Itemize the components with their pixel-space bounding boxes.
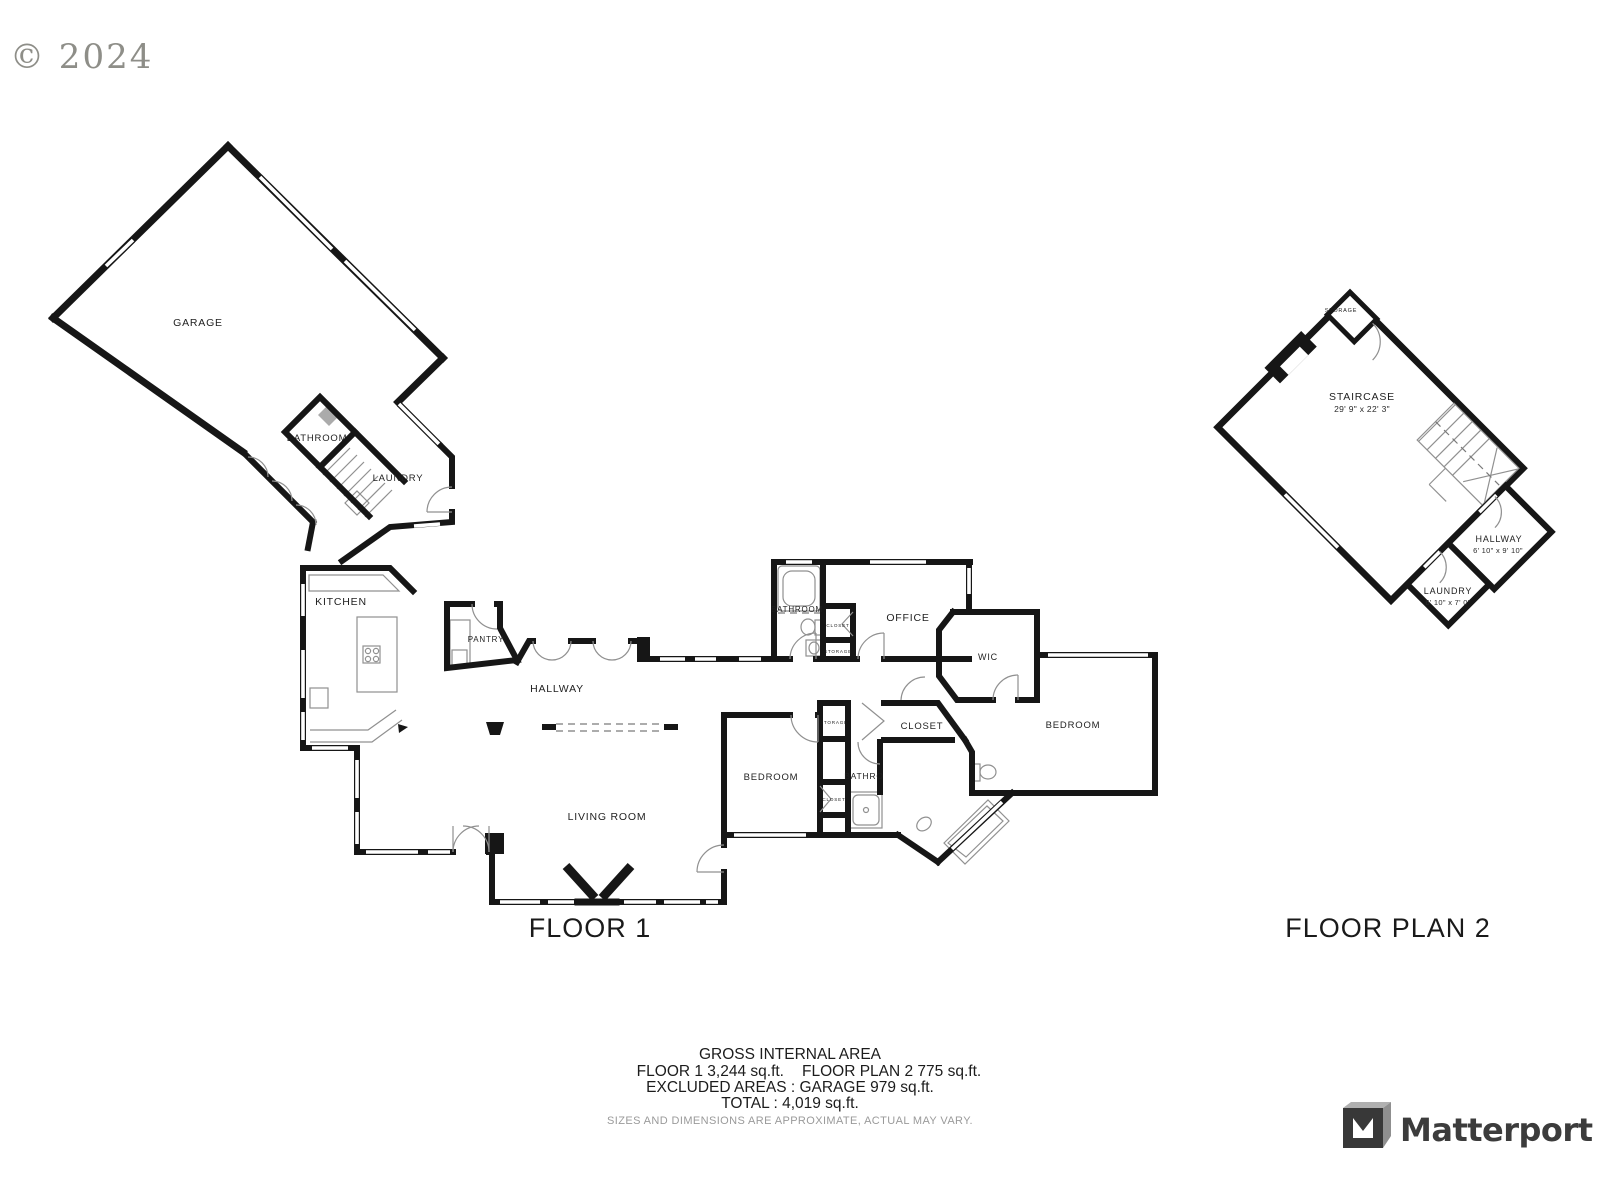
room-dims-f2-hallway: 6' 10" x 9' 10" <box>1473 546 1523 555</box>
room-label-bedroom-right: BEDROOM <box>1046 720 1101 731</box>
summary-floor1-area: FLOOR 1 3,244 sq.ft. <box>637 1063 784 1080</box>
room-label-hallway: HALLWAY <box>530 683 584 695</box>
room-label-storage-a: STORAGE <box>824 649 852 654</box>
room-dims-staircase: 29' 9" x 22' 3" <box>1334 404 1390 414</box>
copyright-text: © 2024 <box>10 37 153 77</box>
room-label-f2-laundry: LAUNDRY <box>1424 586 1472 596</box>
room-label-garage: GARAGE <box>173 317 223 329</box>
room-label-closet-a: CLOSET <box>826 623 849 628</box>
room-label-closet-c: CLOSET <box>822 797 845 802</box>
room-label-laundry: LAUNDRY <box>373 473 424 484</box>
room-label-storage-b: STORAGE <box>820 720 848 725</box>
room-label-f2-hallway: HALLWAY <box>1476 534 1523 544</box>
matterport-icon <box>1343 1102 1391 1148</box>
floor1-title: FLOOR 1 <box>529 913 652 943</box>
floor-plan-canvas: BATHROOM <box>0 0 1600 1200</box>
floor2-structure <box>1211 287 1570 646</box>
floor2-title: FLOOR PLAN 2 <box>1285 913 1491 943</box>
room-label-bathroom2: BATHROOM <box>771 605 823 614</box>
matterport-logo: Matterport <box>1343 1102 1593 1149</box>
room-label-pantry: PANTRY <box>468 635 505 644</box>
floor1-walls <box>53 146 1155 902</box>
summary-excluded: EXCLUDED AREAS : GARAGE 979 sq.ft. <box>646 1079 934 1096</box>
room-label-bedroom-left: BEDROOM <box>744 772 799 783</box>
logo-text: Matterport <box>1400 1111 1593 1149</box>
floor-plan-page: BATHROOM <box>0 0 1600 1200</box>
summary-total: TOTAL : 4,019 sq.ft. <box>721 1095 859 1112</box>
room-label-living-room: LIVING ROOM <box>568 811 647 823</box>
summary-disclaimer: SIZES AND DIMENSIONS ARE APPROXIMATE, AC… <box>607 1115 973 1127</box>
room-label-staircase: STAIRCASE <box>1329 391 1395 403</box>
room-label-closet-b: CLOSET <box>901 721 944 732</box>
room-label-wic: WIC <box>978 652 998 662</box>
room-label-f2-storage: STORAGE <box>1325 308 1357 314</box>
area-summary: GROSS INTERNAL AREA FLOOR 1 3,244 sq.ft.… <box>607 1046 981 1127</box>
summary-heading: GROSS INTERNAL AREA <box>699 1046 882 1063</box>
room-label-kitchen: KITCHEN <box>315 596 367 608</box>
floor1-doors <box>248 457 1018 872</box>
room-label-office: OFFICE <box>886 612 929 624</box>
room-dims-f2-laundry: 6' 10" x 7' 0" <box>1425 598 1470 607</box>
room-label-bathroom3: BATHRO <box>844 771 884 781</box>
summary-floor2-area: FLOOR PLAN 2 775 sq.ft. <box>802 1063 981 1080</box>
